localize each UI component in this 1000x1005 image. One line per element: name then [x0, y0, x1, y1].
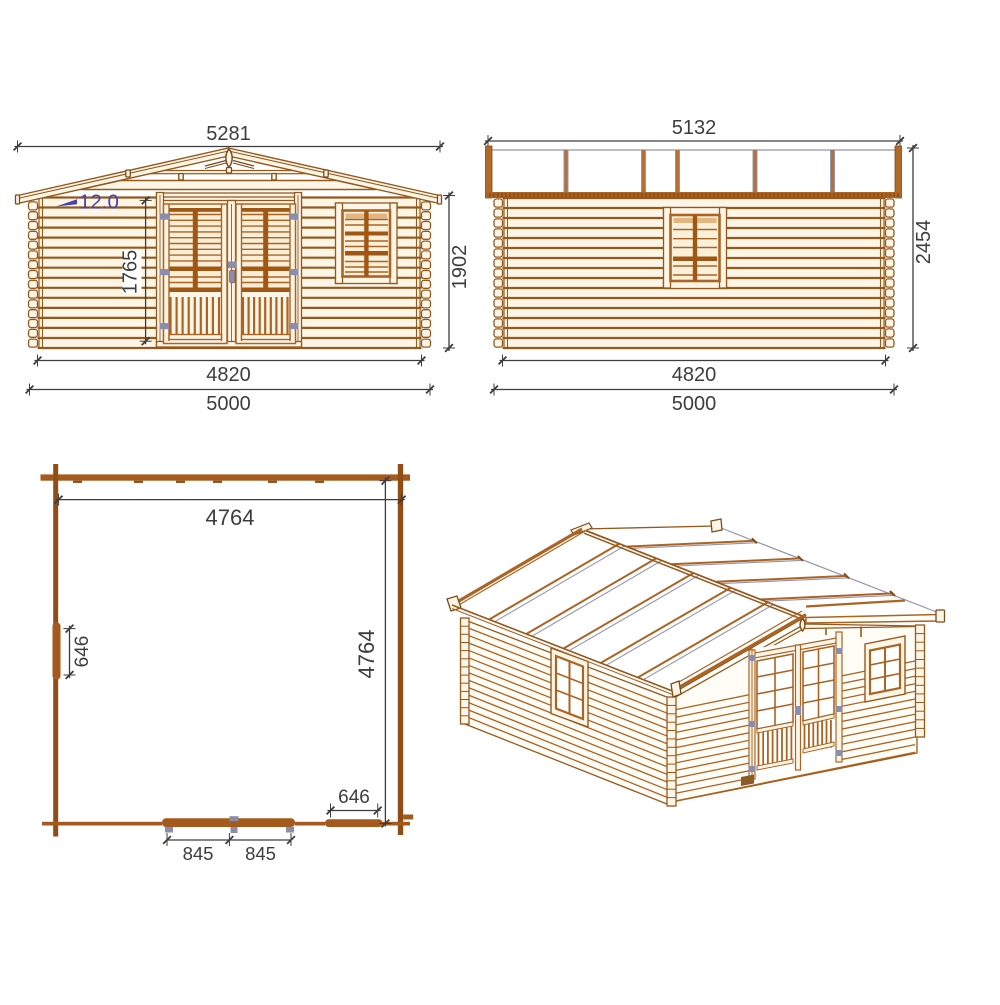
svg-text:4820: 4820: [672, 364, 717, 386]
svg-text:845: 845: [245, 843, 276, 864]
svg-text:5000: 5000: [672, 393, 717, 415]
svg-text:2454: 2454: [913, 220, 935, 265]
svg-text:12.0: 12.0: [79, 191, 119, 214]
svg-text:1902: 1902: [449, 245, 471, 290]
svg-text:1765: 1765: [120, 250, 142, 295]
svg-text:845: 845: [183, 843, 214, 864]
svg-text:5000: 5000: [206, 393, 251, 415]
svg-text:4764: 4764: [354, 630, 379, 679]
svg-text:4820: 4820: [206, 364, 251, 386]
svg-text:5281: 5281: [206, 123, 251, 145]
svg-text:4764: 4764: [206, 505, 255, 530]
svg-text:646: 646: [338, 787, 370, 808]
svg-text:5132: 5132: [672, 117, 717, 139]
svg-text:646: 646: [72, 636, 93, 668]
